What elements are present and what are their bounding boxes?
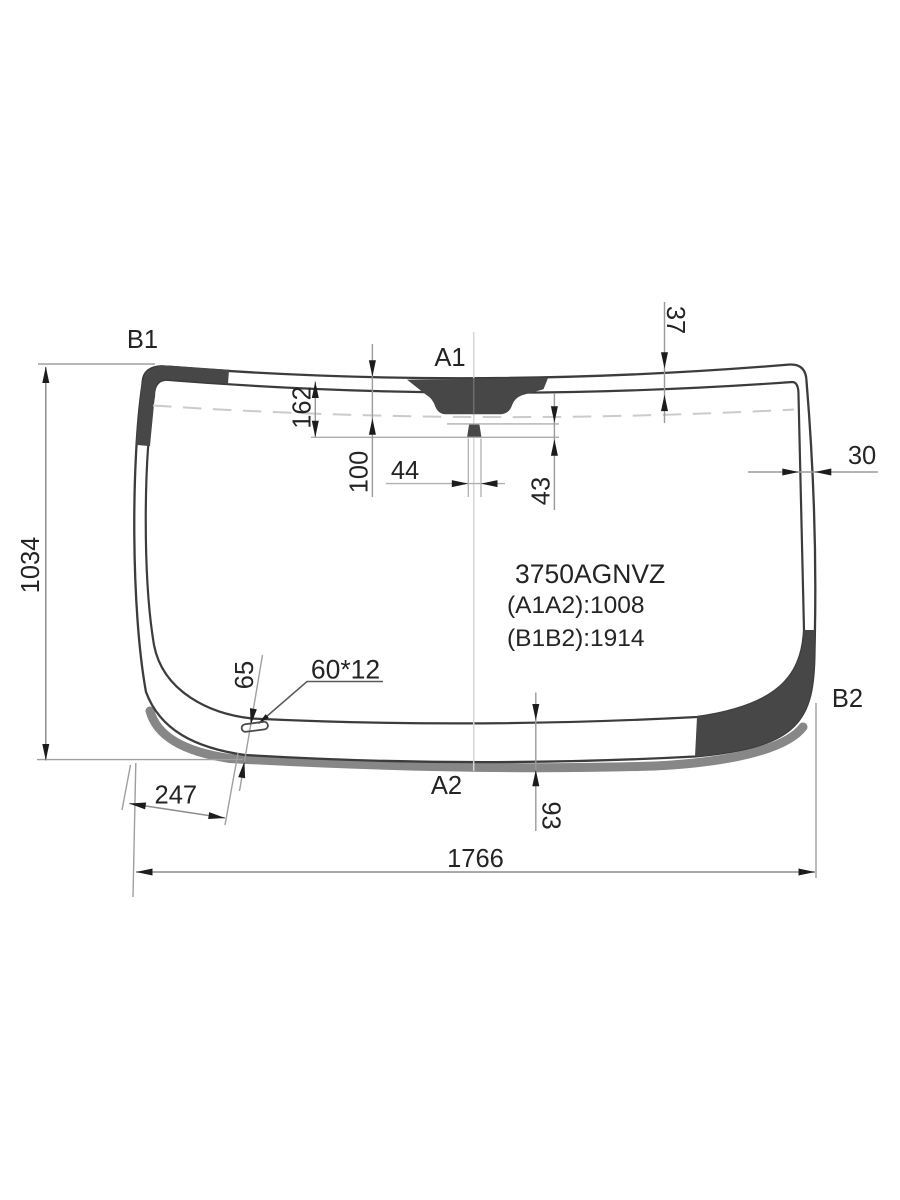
svg-text:3750AGNVZ: 3750AGNVZ [515, 559, 665, 589]
svg-text:100: 100 [346, 451, 374, 494]
svg-text:247: 247 [155, 782, 198, 810]
svg-text:(A1A2):1008: (A1A2):1008 [507, 592, 645, 619]
svg-text:B2: B2 [832, 685, 863, 713]
svg-text:B1: B1 [127, 326, 158, 354]
svg-text:60*12: 60*12 [311, 655, 380, 685]
svg-text:A2: A2 [431, 772, 462, 800]
svg-text:1034: 1034 [17, 537, 45, 594]
svg-text:30: 30 [848, 442, 876, 470]
svg-text:1766: 1766 [447, 845, 504, 873]
svg-text:43: 43 [528, 477, 556, 505]
svg-text:65: 65 [231, 661, 259, 689]
svg-text:93: 93 [537, 801, 565, 829]
svg-text:162: 162 [289, 386, 317, 429]
svg-text:(B1B2):1914: (B1B2):1914 [507, 625, 645, 652]
svg-text:37: 37 [661, 306, 689, 334]
svg-text:44: 44 [391, 457, 419, 485]
svg-text:A1: A1 [434, 344, 465, 372]
